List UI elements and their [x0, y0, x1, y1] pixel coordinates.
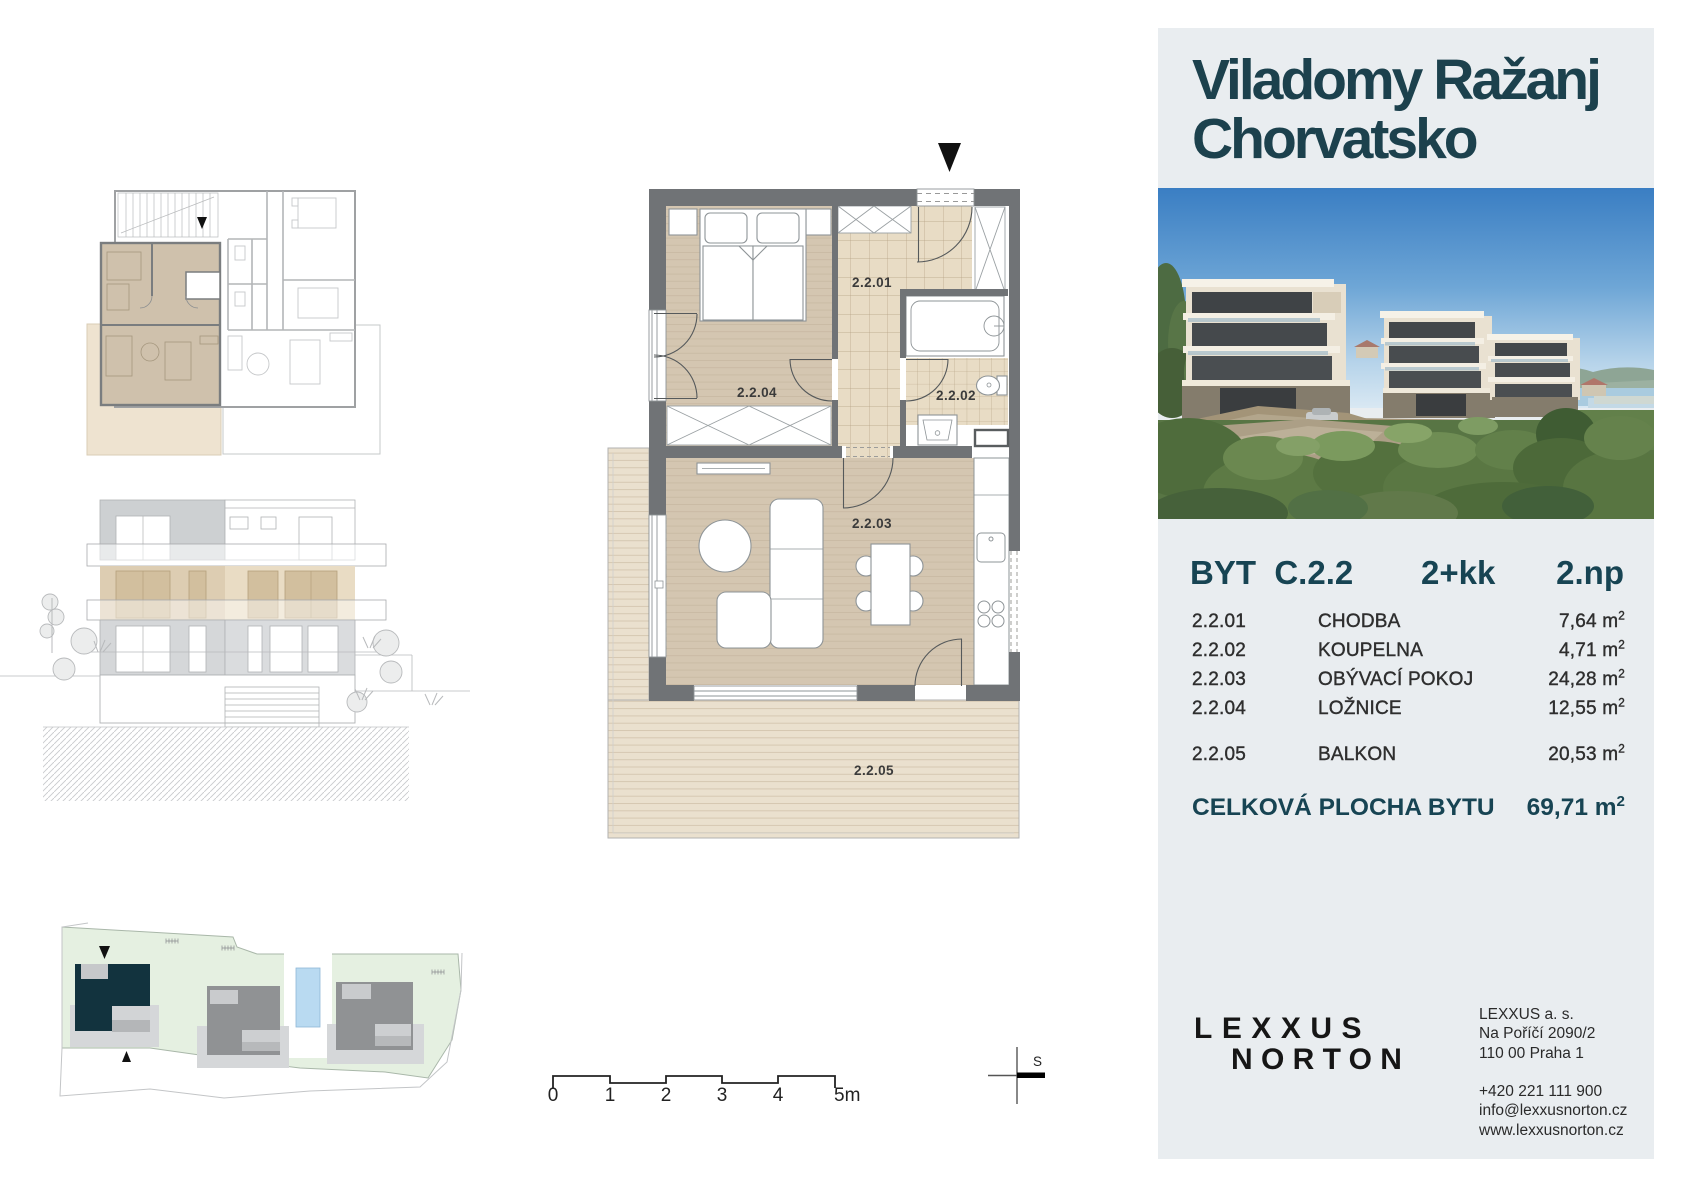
svg-text:3: 3 [717, 1085, 728, 1106]
svg-text:2: 2 [661, 1085, 672, 1106]
svg-text:2.2.02: 2.2.02 [936, 388, 976, 403]
svg-text:4: 4 [773, 1085, 784, 1106]
svg-text:2.2.04: 2.2.04 [737, 385, 777, 400]
svg-text:2.2.03: 2.2.03 [852, 516, 892, 531]
svg-text:1: 1 [605, 1085, 616, 1106]
svg-text:2.2.05: 2.2.05 [854, 763, 894, 778]
svg-text:0: 0 [548, 1085, 559, 1106]
svg-text:2.2.01: 2.2.01 [852, 275, 892, 290]
svg-text:S: S [1033, 1054, 1042, 1069]
svg-text:5m: 5m [834, 1085, 860, 1106]
